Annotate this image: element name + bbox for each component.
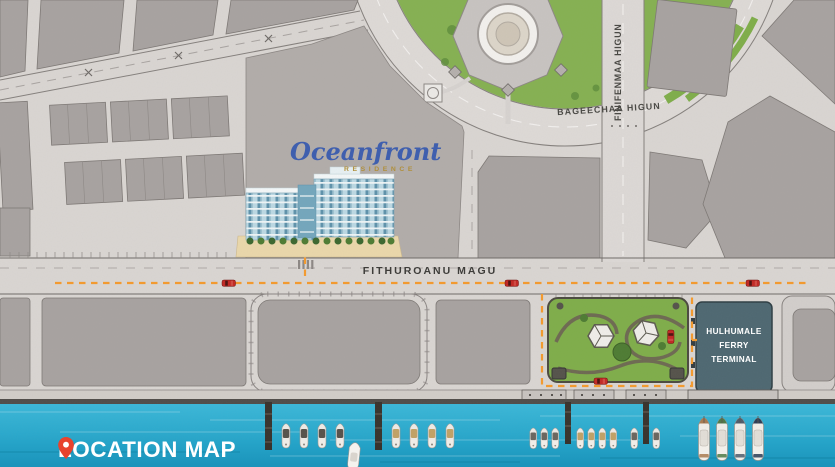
oceanfront-logo-subtitle: RESIDENCE — [290, 166, 422, 173]
ferry-icon — [717, 416, 728, 461]
boat-icon — [336, 424, 344, 448]
ferry-terminal-label: HULHUMALE FERRY TERMINAL — [696, 300, 772, 392]
ferry-icon — [699, 416, 710, 461]
ferry-terminal-line2: TERMINAL — [711, 353, 757, 367]
boat-icon — [446, 424, 454, 448]
map-title-text: LOCATION MAP — [58, 437, 236, 463]
oceanfront-logo: Oceanfront RESIDENCE — [290, 140, 422, 173]
location-pin-icon — [58, 437, 74, 459]
ferry-icon — [735, 416, 746, 461]
ferry-icon — [753, 416, 764, 461]
boat-icon — [410, 424, 418, 448]
boat-icon — [428, 424, 436, 448]
map-title: LOCATION MAP — [58, 437, 236, 463]
ferry-terminal-line1: HULHUMALE FERRY — [696, 325, 772, 353]
boat-icon — [282, 424, 290, 448]
location-map: FITHUROANU MAGU BAGEECHAA HIGUN FINIFENM… — [0, 0, 835, 467]
boat-icon — [318, 424, 326, 448]
street-label-fithuroanu-magu: FITHUROANU MAGU — [340, 265, 520, 277]
boat-icon — [300, 424, 308, 448]
boat-icon — [392, 424, 400, 448]
oceanfront-logo-name: Oceanfront — [290, 140, 422, 164]
street-label-finifenmaa-higun: FINIFENMAA HIGUN — [613, 3, 623, 121]
map-illustration — [0, 0, 835, 467]
